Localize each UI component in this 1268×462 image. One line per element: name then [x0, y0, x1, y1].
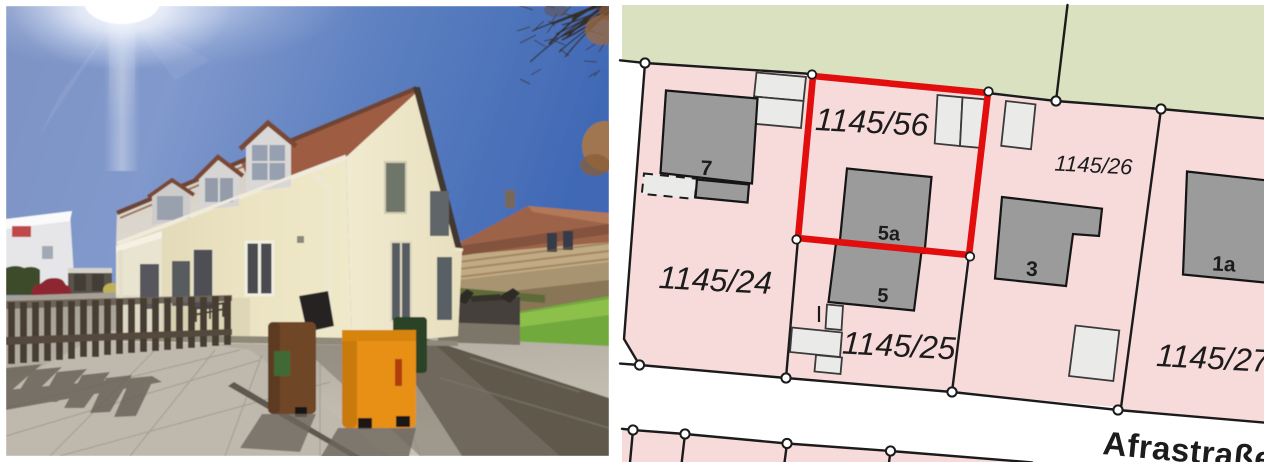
svg-text:5a: 5a	[877, 222, 901, 245]
svg-text:1145/27: 1145/27	[1155, 337, 1268, 379]
svg-text:1145/56: 1145/56	[814, 101, 929, 143]
svg-text:1145/24: 1145/24	[658, 259, 773, 301]
svg-text:5: 5	[877, 285, 889, 308]
svg-text:7: 7	[700, 157, 713, 181]
svg-text:1a: 1a	[1212, 252, 1237, 276]
svg-text:1145/25: 1145/25	[841, 325, 956, 367]
svg-text:3: 3	[1025, 258, 1038, 282]
svg-text:1145/26: 1145/26	[1054, 151, 1134, 180]
